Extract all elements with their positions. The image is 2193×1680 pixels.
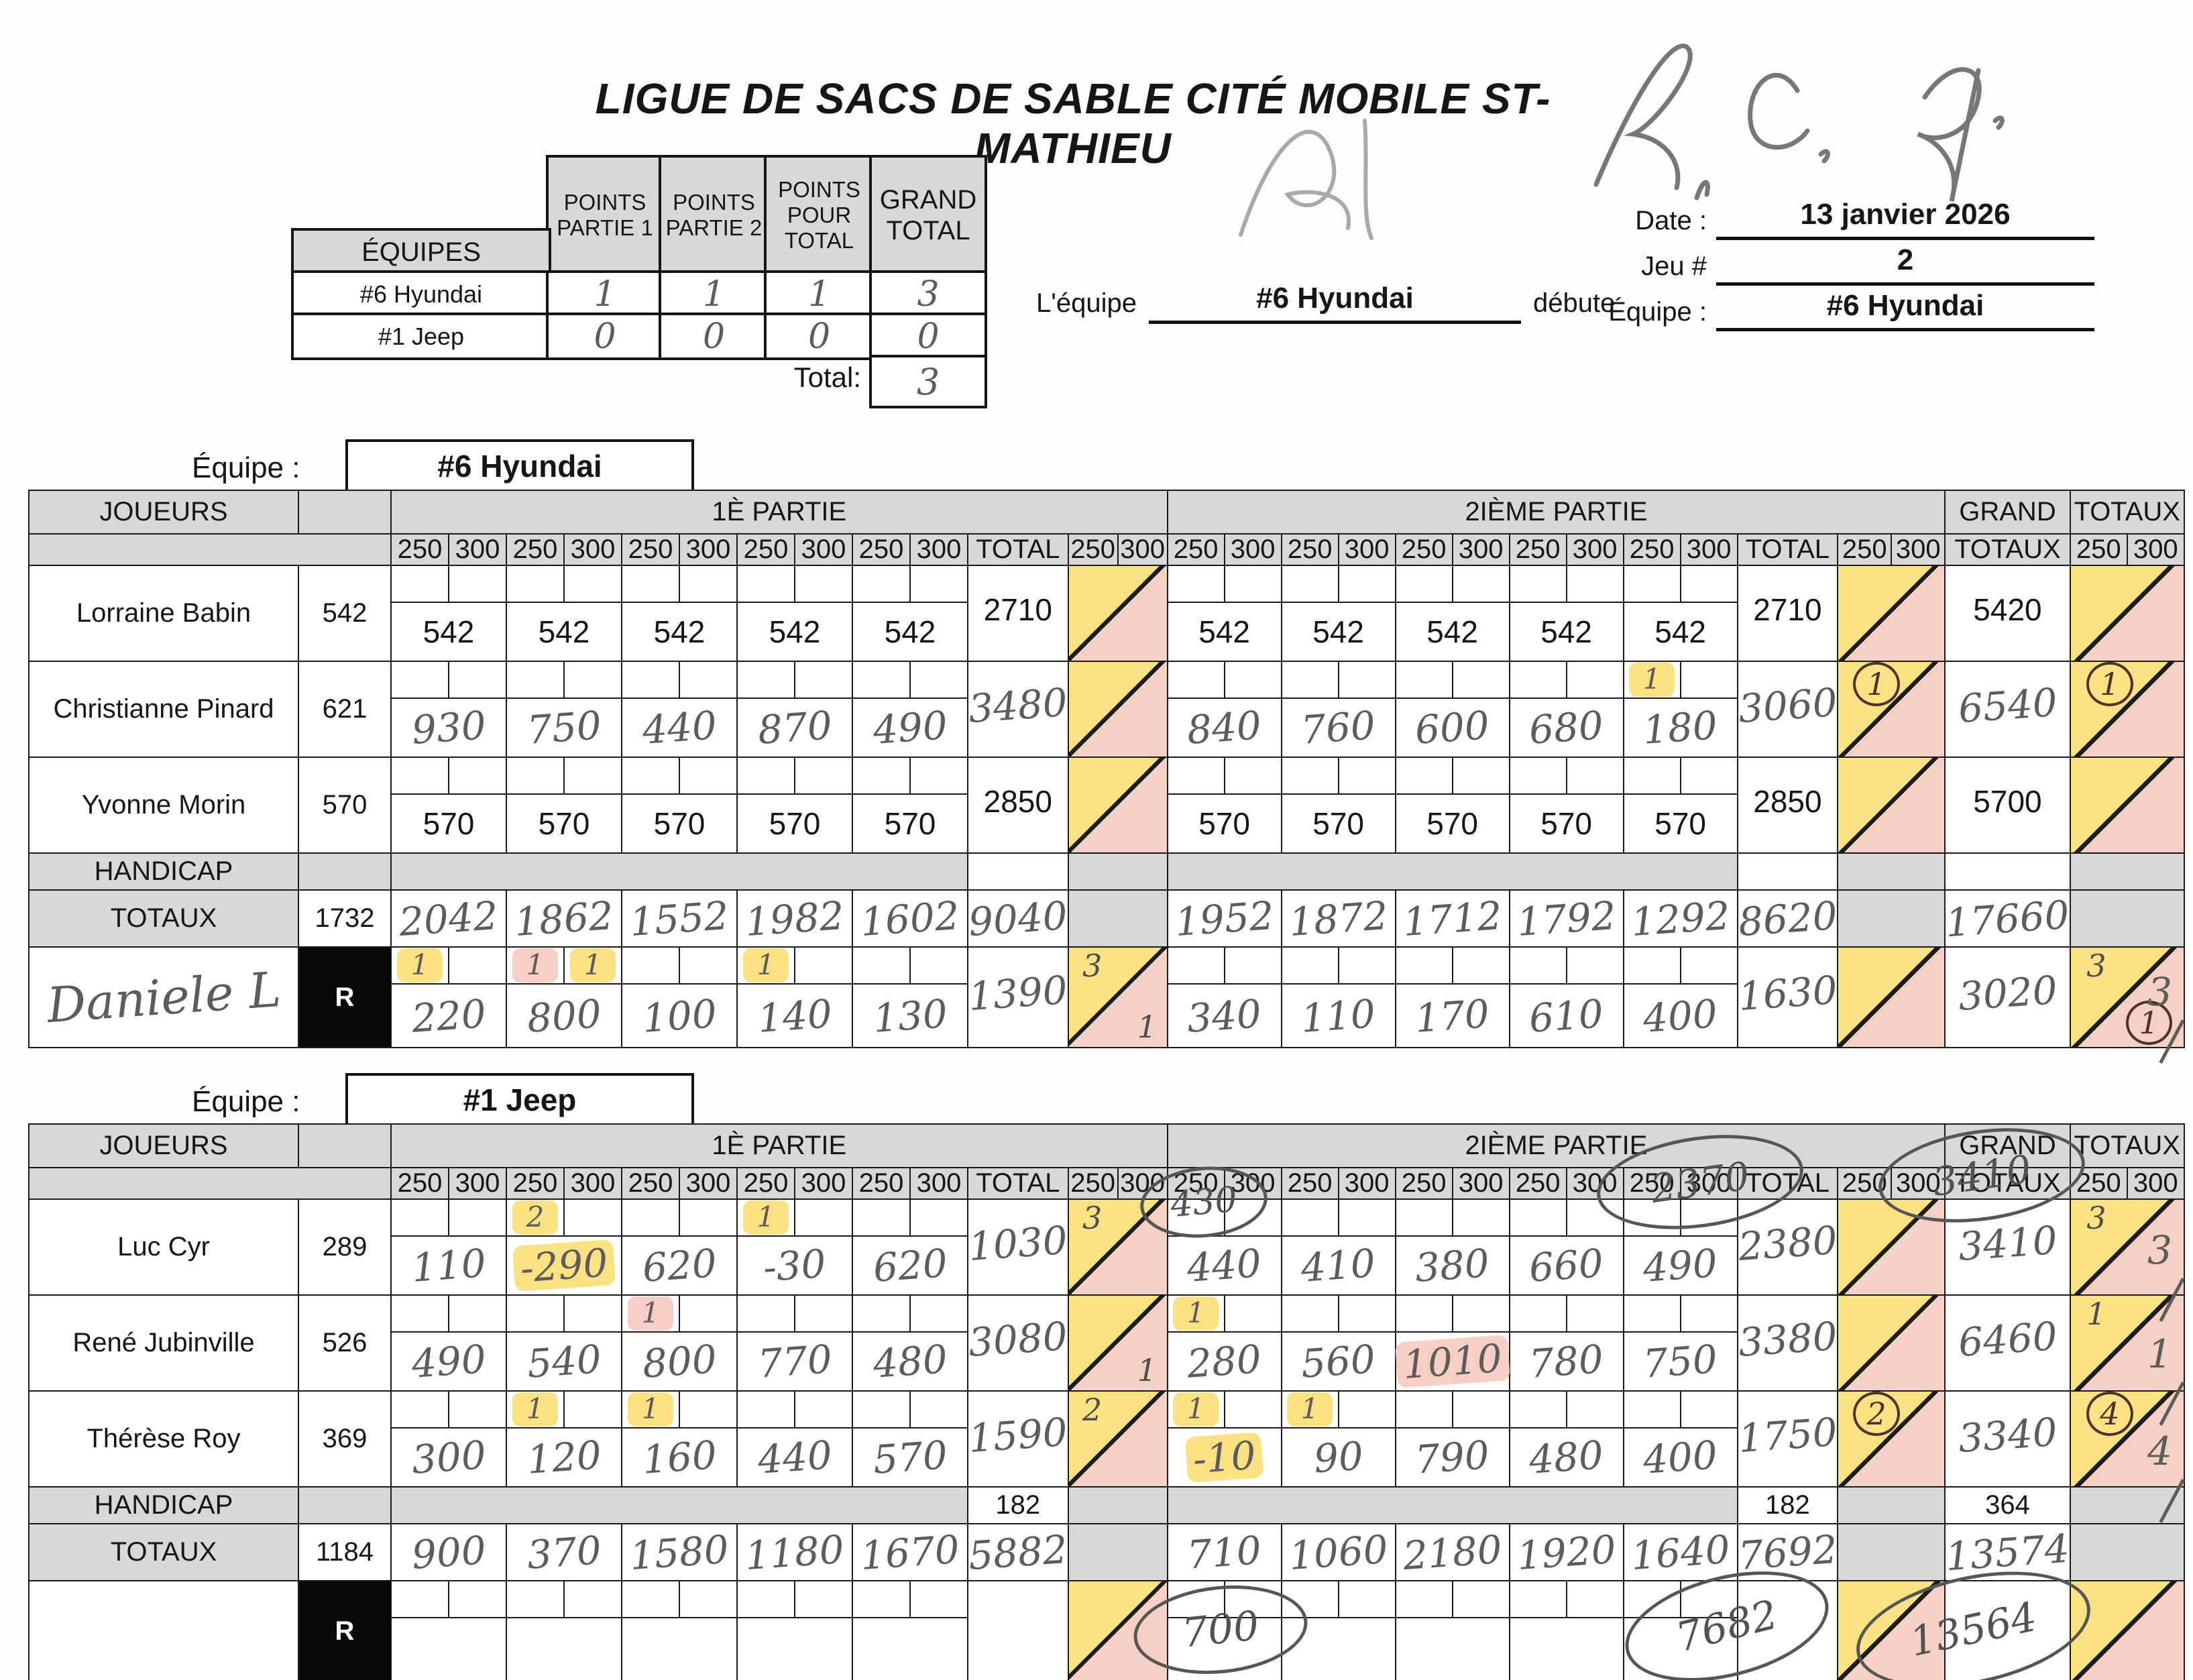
player-p1-total-value: 2710 (984, 592, 1052, 628)
player-p1-score-0: 300 (391, 1428, 506, 1487)
player-p1-mark-f1-c1 (564, 757, 622, 794)
player-grand-total-value: 3340 (1956, 1408, 2058, 1461)
player-p2-mark-f0-c0 (1168, 661, 1225, 698)
player-p1-score-2: 570 (622, 794, 737, 853)
col-250-header: 250 (737, 1168, 795, 1199)
totaux-p2-value: 1792 (1516, 892, 1618, 944)
r-row-p1-score-1 (506, 1618, 622, 1680)
player-grand-total-value: 6460 (1956, 1312, 2058, 1365)
totaux-p2-total-value: 7692 (1736, 1526, 1838, 1578)
player-p1-score-value: 570 (654, 806, 706, 841)
player-p2-score-3: 570 (1510, 794, 1624, 853)
player-p1-mark-f4-c1 (910, 1295, 968, 1332)
totaux-pairC-band (2070, 1524, 2184, 1581)
player-p1-total-value: 1590 (967, 1408, 1069, 1461)
totaux-p1-value: 1862 (513, 892, 615, 944)
player-p2-mark-f3-c1 (1567, 565, 1624, 602)
player-average: 570 (298, 757, 391, 853)
r-row-p1-mark-f4-c1 (910, 947, 968, 984)
totaux-p1-total: 5882 (968, 1524, 1068, 1581)
player-p2-mark-f2-c1 (1453, 1295, 1510, 1332)
player-p2-mark-f2-c1 (1453, 757, 1510, 794)
player-p2-mark-f4-c0 (1624, 565, 1681, 602)
player-p1-score-1: 120 (506, 1428, 622, 1487)
r-row-p1-mark-f0-c0 (391, 1581, 449, 1618)
col-300-header: 300 (2127, 1168, 2184, 1199)
player-p2-score-0: 440 (1168, 1236, 1282, 1295)
player-p1-score-value: 490 (871, 702, 948, 753)
subheader-blank (29, 1168, 391, 1199)
col-300-header: 300 (564, 1168, 622, 1199)
player-p2-score-value: 750 (1642, 1336, 1719, 1387)
player-p2-mark-f3-c1 (1567, 757, 1624, 794)
player-p1-mark-f2-c1 (679, 1391, 737, 1428)
handicap-pairB-band (1838, 853, 1945, 890)
player-name: Luc Cyr (29, 1199, 298, 1295)
player-p2-points-cell-top-mark: 2 (1853, 1392, 1899, 1436)
avg-header-blank (298, 1124, 391, 1168)
player-p1-mark-f0-c0 (391, 1391, 449, 1428)
r-row-p1-points-cell-bottom-mark: 1 (1137, 1009, 1157, 1045)
totaux-p2-value: 1712 (1402, 892, 1504, 944)
player-p2-mark-f2-c0 (1396, 661, 1453, 698)
player-p2-score-1: 410 (1282, 1236, 1396, 1295)
player-grand-total-value: 6540 (1956, 679, 2058, 731)
player-p2-score-4: 490 (1624, 1236, 1738, 1295)
handicap-p1-total (968, 853, 1068, 890)
r-row-p2-mark-f4-c1 (1681, 947, 1738, 984)
player-p2-score-1: 90 (1282, 1428, 1396, 1487)
score-grid: JOUEURS1È PARTIE2IÈME PARTIEGRANDTOTAUX2… (28, 1123, 2185, 1680)
r-row-p1-score-2 (622, 1618, 737, 1680)
player-p2-mark-f2-c0 (1396, 1391, 1453, 1428)
player-p1-mark-f1-c0: 2 (506, 1199, 564, 1236)
totaux-p1-value: 370 (525, 1527, 602, 1578)
player-p2-mark-f3-c0 (1510, 565, 1567, 602)
r-row-p1-mark-f0-c1 (449, 947, 506, 984)
col-250-header: 250 (391, 1168, 449, 1199)
partie2-header: 2IÈME PARTIE (1168, 1124, 1946, 1168)
handicap-pairA-band (1068, 1487, 1168, 1524)
player-p2-total-value: 2850 (1753, 783, 1821, 820)
player-p2-mark-f2-c1 (1453, 661, 1510, 698)
player-p1-score-3: 770 (737, 1332, 852, 1391)
player-p2-mark-f4-c0 (1624, 757, 1681, 794)
player-p1-mark-f1-c0 (506, 565, 564, 602)
player-p1-score-value: 120 (525, 1432, 602, 1483)
player-p1-total: 3480 (968, 661, 1068, 757)
summary-total-label: Total: (667, 361, 861, 394)
player-p1-mark-f4-c0 (852, 1199, 910, 1236)
player-p2-mark-f2-c0 (1396, 757, 1453, 794)
summary-team2-pts-total: 0 (764, 313, 875, 360)
player-average: 369 (298, 1391, 391, 1487)
player-p2-mark-f3-c0 (1510, 1391, 1567, 1428)
totaux-label: TOTAUX (29, 1524, 298, 1581)
player-p1-mark-f1-c1 (564, 661, 622, 698)
totaux-average: 1184 (298, 1524, 391, 1581)
r-row-p1-mark: 1 (397, 948, 443, 982)
totaux-p1-col-3: 1982 (737, 890, 852, 947)
col-250-header: 250 (1282, 534, 1339, 565)
r-row-p1-mark: 1 (570, 948, 616, 982)
player-p1-mark: 1 (512, 1392, 558, 1426)
player-p2-mark-f4-c1 (1681, 1391, 1738, 1428)
player-p1-mark-f1-c1 (564, 1391, 622, 1428)
player-p1-score-1: 540 (506, 1332, 622, 1391)
player-p2-score-value: 480 (1528, 1432, 1605, 1483)
handicap-grand (1945, 853, 2070, 890)
player-p2-score-4: 570 (1624, 794, 1738, 853)
replacement-marker: R (298, 947, 391, 1048)
col-250-header: 250 (1396, 1168, 1453, 1199)
player-p2-mark-f2-c1 (1453, 1391, 1510, 1428)
player-grand-points-cell-top-mark: 1 (2086, 662, 2133, 706)
player-p1-score-0: 490 (391, 1332, 506, 1391)
r-row-p2-mark-f2-c0 (1396, 947, 1453, 984)
summary-team1-name: #6 Hyundai (291, 270, 551, 318)
handicap-p2-band (1168, 1487, 1738, 1524)
player-p2-score-value: 440 (1186, 1240, 1263, 1291)
team-name-box: #1 Jeep (345, 1073, 694, 1127)
player-p1-score-value: 870 (756, 702, 833, 753)
player-p2-mark-f1-c1 (1339, 1295, 1396, 1332)
player-name: René Jubinville (29, 1295, 298, 1391)
summary-header-points-partie2: POINTS PARTIE 2 (659, 155, 769, 276)
player-p2-points-cell: 2 (1838, 1391, 1945, 1487)
r-row-p2-mark-f2-c1 (1453, 1581, 1510, 1618)
player-grand-points-cell (2070, 757, 2184, 853)
totaux-p1-total-value: 9040 (967, 892, 1069, 944)
player-p1-score-4: 480 (852, 1332, 968, 1391)
player-p2-score-1: 560 (1282, 1332, 1396, 1391)
player-p1-score-value: 800 (640, 1336, 718, 1387)
r-row-p2-score-0: 340 (1168, 984, 1282, 1048)
player-p1-mark-f1-c1 (564, 565, 622, 602)
partie1-header: 1È PARTIE (391, 490, 1168, 534)
summary-header-points-partie1: POINTS PARTIE 1 (546, 155, 664, 276)
col-250-header: 250 (1510, 534, 1567, 565)
player-p1-score-3: 542 (737, 602, 852, 661)
r-row-p2-mark-f3-c0 (1510, 1581, 1567, 1618)
equipe-value: #6 Hyundai (1716, 289, 2094, 331)
player-p1-score-value: 750 (525, 702, 602, 753)
r-row-p1-score-4: 130 (852, 984, 968, 1048)
r-row-p2-mark-f0-c0 (1168, 947, 1225, 984)
player-p2-score-4: 750 (1624, 1332, 1738, 1391)
r-row-p1-mark-f0-c0: 1 (391, 947, 449, 984)
player-p1-score-value: 770 (756, 1336, 833, 1387)
player-name: Yvonne Morin (29, 757, 298, 853)
player-average: 542 (298, 565, 391, 661)
totaux-p2-value: 1920 (1516, 1526, 1618, 1578)
player-p2-score-0: 570 (1168, 794, 1282, 853)
total-col-header: TOTAL (1738, 534, 1838, 565)
totaux-p1-col-1: 370 (506, 1524, 622, 1581)
r-row-p1-mark-f1-c1: 1 (564, 947, 622, 984)
meta-date-row: Date : 13 janvier 2026 (1563, 198, 2094, 240)
total-col-header: TOTAL (968, 534, 1068, 565)
player-p1-total: 1590 (968, 1391, 1068, 1487)
player-p1-mark: 2 (512, 1200, 558, 1234)
player-p1-mark-f0-c0 (391, 661, 449, 698)
player-p2-mark-f1-c0 (1282, 1199, 1339, 1236)
player-p2-mark-f0-c1 (1225, 565, 1282, 602)
player-p2-score-value: 180 (1642, 702, 1719, 753)
player-p1-mark-f2-c0 (622, 565, 679, 602)
player-p1-mark-f2-c0 (622, 757, 679, 794)
lequipe-label: L'équipe (1036, 288, 1137, 324)
player-p2-mark-f1-c1 (1339, 565, 1396, 602)
player-p2-score-2: 790 (1396, 1428, 1510, 1487)
r-row-p1-score-1: 800 (506, 984, 622, 1048)
totaux-p2-value: 1060 (1288, 1526, 1390, 1578)
r-row-p1-mark: 1 (743, 948, 789, 982)
player-p1-mark-f0-c1 (449, 565, 506, 602)
partie2-header: 2IÈME PARTIE (1168, 490, 1946, 534)
scorer-squiggle-signature (1214, 94, 1455, 248)
jeu-label: Jeu # (1563, 251, 1707, 286)
meta-equipe-row: Équipe : #6 Hyundai (1563, 289, 2094, 331)
player-p1-mark-f4-c0 (852, 1391, 910, 1428)
r-row-p1-mark-f0-c1 (449, 1581, 506, 1618)
player-p2-points-cell (1838, 1295, 1945, 1391)
player-p2-score-1: 570 (1282, 794, 1396, 853)
player-p1-score-value: 542 (769, 614, 821, 649)
player-p1-mark-f0-c0 (391, 1295, 449, 1332)
player-p1-score-value: 570 (769, 806, 821, 841)
player-p1-mark-f4-c0 (852, 1295, 910, 1332)
totaux-p2-col-2: 2180 (1396, 1524, 1510, 1581)
player-p1-mark-f2-c1 (679, 757, 737, 794)
player-p1-score-value: 160 (640, 1432, 718, 1483)
handicap-avg-blank (298, 853, 391, 890)
totaux-p1-col-0: 900 (391, 1524, 506, 1581)
player-p2-score-value: 570 (1426, 806, 1478, 841)
col-250-header: 250 (2070, 534, 2127, 565)
player-p2-score-value: 760 (1300, 702, 1377, 753)
player-p1-mark-f3-c1 (795, 661, 852, 698)
r-row-p1-score-0: 220 (391, 984, 506, 1048)
player-p2-total: 3060 (1738, 661, 1838, 757)
handicap-label: HANDICAP (29, 853, 298, 890)
handicap-label: HANDICAP (29, 1487, 298, 1524)
player-p1-mark-f3-c0 (737, 565, 795, 602)
player-p2-mark-f1-c1 (1339, 661, 1396, 698)
col-250-header: 250 (737, 534, 795, 565)
player-p2-mark-f4-c0: 1 (1624, 661, 1681, 698)
player-p2-mark-f1-c0 (1282, 661, 1339, 698)
summary-team2-pts-p2: 0 (659, 313, 769, 360)
col-300-header: 300 (564, 534, 622, 565)
player-p2-mark: 1 (1287, 1392, 1333, 1426)
score-grid: JOUEURS1È PARTIE2IÈME PARTIEGRANDTOTAUX2… (28, 490, 2185, 1048)
player-p2-mark-f2-c0 (1396, 1199, 1453, 1236)
col-300-header: 300 (1339, 534, 1396, 565)
player-p1-mark-f3-c0: 1 (737, 1199, 795, 1236)
player-p2-score-4: 180 (1624, 698, 1738, 757)
r-row-p1-score-3 (737, 1618, 852, 1680)
totaux-p2-value: 1640 (1630, 1526, 1732, 1578)
player-p1-score-value: 570 (885, 806, 936, 841)
col-250-header: 250 (622, 1168, 679, 1199)
totaux-p2-value: 710 (1186, 1527, 1263, 1578)
player-p1-mark-f1-c1 (564, 1295, 622, 1332)
summary-total-value: 3 (869, 355, 987, 408)
handicap-p2-band (1168, 853, 1738, 890)
r-row-grand-total: 3020 (1945, 947, 2070, 1048)
scorer-signature-cell: Daniele L (29, 947, 298, 1048)
r-row-p2-mark-f1-c1 (1339, 1581, 1396, 1618)
player-p1-score-value: 542 (885, 614, 936, 649)
r-row-p1-score-value: 100 (640, 991, 718, 1042)
player-p2-mark-f0-c0 (1168, 565, 1225, 602)
r-row-p1-score-2: 100 (622, 984, 737, 1048)
date-value: 13 janvier 2026 (1716, 198, 2094, 240)
col-250-header: 250 (506, 534, 564, 565)
r-row-p1-mark-f2-c0 (622, 947, 679, 984)
col-250-header: 250 (852, 534, 910, 565)
player-p1-points-cell (1068, 565, 1168, 661)
player-p2-total-value: 2380 (1736, 1217, 1838, 1269)
player-p2-total-value: 3380 (1736, 1312, 1838, 1365)
partie1-header: 1È PARTIE (391, 1124, 1168, 1168)
player-p2-score-value: 542 (1198, 614, 1250, 649)
player-p2-mark: 1 (1629, 663, 1675, 696)
player-p1-mark-f3-c1 (795, 565, 852, 602)
totaux-p1-value: 1670 (859, 1526, 961, 1578)
player-p2-mark-f3-c0 (1510, 661, 1567, 698)
totaux-pairA-band (1068, 1524, 1168, 1581)
player-p2-mark: 1 (1173, 1296, 1219, 1330)
totaux-p2-col-0: 710 (1168, 1524, 1282, 1581)
scoresheet-page: LIGUE DE SACS DE SABLE CITÉ MOBILE ST-MA… (0, 0, 2193, 1680)
player-p2-mark-f3-c0 (1510, 757, 1567, 794)
player-p1-score-4: 620 (852, 1236, 968, 1295)
col-250-header: 250 (1068, 534, 1118, 565)
r-row-p2-score-3: 610 (1510, 984, 1624, 1048)
player-p1-mark-f4-c0 (852, 757, 910, 794)
totaux-p2-value: 2180 (1402, 1526, 1504, 1578)
r-row-p1-mark-f4-c0 (852, 1581, 910, 1618)
player-p2-score-2: 380 (1396, 1236, 1510, 1295)
player-p2-score-3: 780 (1510, 1332, 1624, 1391)
r-row-p1-score-3: 140 (737, 984, 852, 1048)
team-equipe-label: Équipe : (192, 451, 300, 485)
player-p2-points-cell (1838, 757, 1945, 853)
player-p1-mark-f3-c1 (795, 1295, 852, 1332)
r-row-p1-mark-f2-c1 (679, 947, 737, 984)
player-p2-score-2: 542 (1396, 602, 1510, 661)
player-p1-mark-f1-c0 (506, 757, 564, 794)
player-p2-score-2: 570 (1396, 794, 1510, 853)
r-row-p1-score-value: 130 (871, 991, 948, 1042)
totaux-p1-total: 9040 (968, 890, 1068, 947)
player-p1-mark-f2-c0 (622, 661, 679, 698)
totaux-p2-value: 1952 (1174, 892, 1276, 944)
totaux-p1-col-2: 1552 (622, 890, 737, 947)
player-p1-score-value: 542 (539, 614, 590, 649)
player-p2-points-cell (1838, 565, 1945, 661)
totaux-p2-total-value: 8620 (1736, 892, 1838, 944)
player-p1-total-value: 2850 (984, 783, 1052, 820)
col-300-header: 300 (910, 534, 968, 565)
r-row-p2-mark-f1-c1 (1339, 947, 1396, 984)
player-p1-mark-f0-c1 (449, 1391, 506, 1428)
r-row-p2-mark-f3-c1 (1567, 1581, 1624, 1618)
grand-header: GRAND (1945, 490, 2070, 534)
col-250-header: 250 (506, 1168, 564, 1199)
player-p1-mark-f2-c1 (679, 1295, 737, 1332)
r-row-p1-points-cell: 31 (1068, 947, 1168, 1048)
r-row-p2-mark-f0-c1 (1225, 947, 1282, 984)
r-row-p2-mark-f2-c0 (1396, 1581, 1453, 1618)
player-p2-score-value: 490 (1642, 1240, 1719, 1291)
player-p2-score-value: 542 (1312, 614, 1364, 649)
player-p2-mark-f0-c0: 1 (1168, 1391, 1225, 1428)
player-p1-score-value: 542 (423, 614, 475, 649)
player-p2-mark-f0-c1 (1225, 757, 1282, 794)
player-p1-score-value: 570 (539, 806, 590, 841)
player-p1-total-value: 3480 (967, 679, 1069, 731)
r-row-p1-mark-f3-c1 (795, 947, 852, 984)
player-p2-score-0: 542 (1168, 602, 1282, 661)
player-p2-score-1: 760 (1282, 698, 1396, 757)
player-p1-mark-f3-c0 (737, 1295, 795, 1332)
player-p2-score-4: 400 (1624, 1428, 1738, 1487)
totaux-p2-col-1: 1872 (1282, 890, 1396, 947)
r-row-p2-mark-f4-c0 (1624, 947, 1681, 984)
col-300-header: 300 (679, 534, 737, 565)
totaux-label: TOTAUX (29, 890, 298, 947)
player-grand-total: 6460 (1945, 1295, 2070, 1391)
player-p2-score-value: 680 (1528, 702, 1605, 753)
totaux-p1-col-1: 1862 (506, 890, 622, 947)
player-grand-points-cell: 1 (2070, 661, 2184, 757)
team-equipe-label: Équipe : (192, 1085, 300, 1119)
totaux-pairC-band (2070, 890, 2184, 947)
player-p1-total: 3080 (968, 1295, 1068, 1391)
player-p2-mark-f1-c0 (1282, 1295, 1339, 1332)
margin-point-note: 3 (2147, 1227, 2174, 1324)
player-p1-score-0: 110 (391, 1236, 506, 1295)
player-grand-points-cell-top-mark: 1 (2086, 1296, 2106, 1332)
player-p1-score-3: 440 (737, 1428, 852, 1487)
player-p2-mark-f1-c1 (1339, 1199, 1396, 1236)
player-p1-score-2: 440 (622, 698, 737, 757)
col-300-header: 300 (1339, 1168, 1396, 1199)
player-p2-points-cell-top-mark: 1 (1853, 662, 1899, 706)
player-p1-score-value: 440 (640, 702, 718, 753)
player-p1-mark-f0-c1 (449, 661, 506, 698)
player-p1-mark-f4-c1 (910, 1199, 968, 1236)
col-250-header: 250 (1510, 1168, 1567, 1199)
player-p2-mark-f4-c0 (1624, 1295, 1681, 1332)
team-name-box: #6 Hyundai (345, 439, 694, 493)
totaux-p2-col-1: 1060 (1282, 1524, 1396, 1581)
player-p2-mark-f2-c1 (1453, 565, 1510, 602)
player-p2-score-3: 480 (1510, 1428, 1624, 1487)
col-250-header: 250 (622, 534, 679, 565)
player-p1-mark-f3-c0 (737, 757, 795, 794)
player-p2-score-2: 600 (1396, 698, 1510, 757)
player-p1-points-cell: 2 (1068, 1391, 1168, 1487)
player-p2-score-0: 840 (1168, 698, 1282, 757)
player-p1-mark-f3-c1 (795, 757, 852, 794)
r-row-p1-score-value: 800 (525, 991, 602, 1042)
player-p2-score-value: 780 (1528, 1336, 1605, 1387)
summary-header-grand-total: GRAND TOTAL (869, 155, 987, 276)
